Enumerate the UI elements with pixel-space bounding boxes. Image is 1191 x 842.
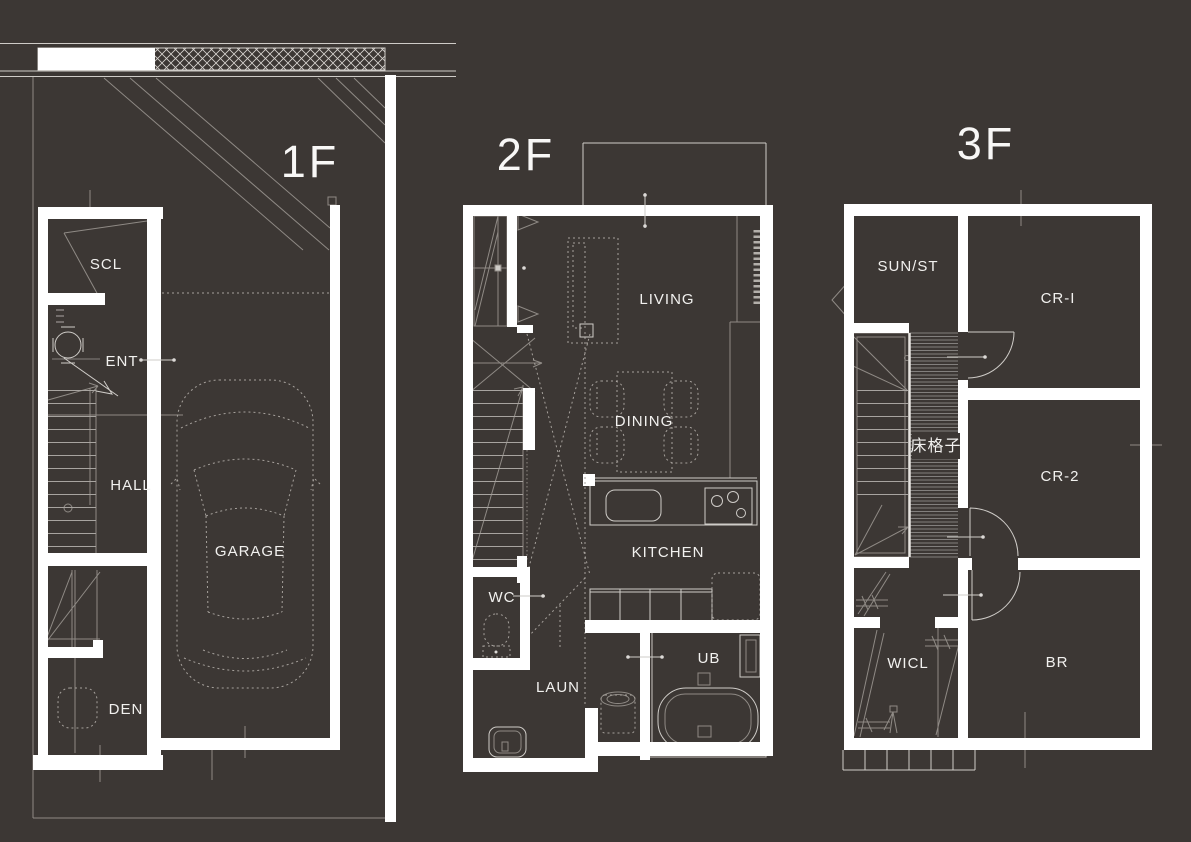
room-label-wc: WC (489, 589, 516, 606)
room-label-dining: DINING (615, 413, 674, 430)
road-white-band (38, 48, 155, 70)
room-label-cr2: CR-2 (1040, 468, 1079, 485)
f2-stairs (470, 385, 523, 561)
floor-plan-drawing: 1F SCL ENT HALL GARAGE DEN (0, 0, 1191, 842)
room-label-hall: HALL (110, 477, 152, 494)
room-label-cr1: CR-I (1041, 290, 1076, 307)
f3-stairs (857, 387, 908, 504)
room-label-br: BR (1046, 654, 1069, 671)
toilet (483, 614, 510, 657)
door-arc-cr2 (970, 508, 1018, 556)
room-label-scl: SCL (90, 256, 122, 273)
door-arc-cr1 (968, 332, 1014, 378)
living-small-fixture (580, 324, 593, 337)
floor-label-1f: 1F (281, 136, 340, 187)
kitchen-sink (606, 490, 661, 521)
refrigerator (712, 573, 760, 620)
f3-balcony (843, 750, 975, 770)
den-stool (58, 688, 97, 728)
road-boundary (0, 44, 456, 77)
floor-label-2f: 2F (497, 129, 556, 180)
room-label-den: DEN (109, 701, 144, 718)
f2-balcony (583, 143, 766, 205)
floor-plan-1f: 1F SCL ENT HALL GARAGE DEN (0, 44, 456, 823)
kitchen-island (590, 589, 712, 621)
room-label-sunst: SUN/ST (877, 258, 938, 275)
room-label-living: LIVING (639, 291, 694, 308)
f2-sanitary (489, 627, 766, 757)
bathtub (658, 688, 758, 750)
floor-plan-2f: 2F LIVING DINING KITCHEN WC LAUN UB (463, 129, 773, 772)
bath-washstand (740, 635, 760, 677)
room-label-ent: ENT (106, 353, 139, 370)
f1-annotations: 1F SCL ENT HALL GARAGE DEN (90, 136, 339, 718)
car-outline (171, 380, 320, 688)
floor-plan-sheet: 1F SCL ENT HALL GARAGE DEN (0, 0, 1191, 842)
f1-stairs (42, 388, 96, 557)
room-label-grate: 床格子 (910, 437, 961, 455)
washing-machine-body (601, 695, 635, 733)
room-label-laun: LAUN (536, 679, 580, 696)
room-label-wicl: WICL (887, 655, 929, 672)
floor-plan-3f: 3F SUN/ST CR-I 床格子 CR-2 WICL BR (832, 118, 1162, 770)
room-label-kitchen: KITCHEN (632, 544, 705, 561)
floor-label-3f: 3F (957, 118, 1016, 169)
road-hatch-band (155, 48, 385, 70)
room-label-garage: GARAGE (215, 543, 285, 560)
f1-furniture (58, 293, 330, 728)
room-label-ub: UB (698, 650, 721, 667)
